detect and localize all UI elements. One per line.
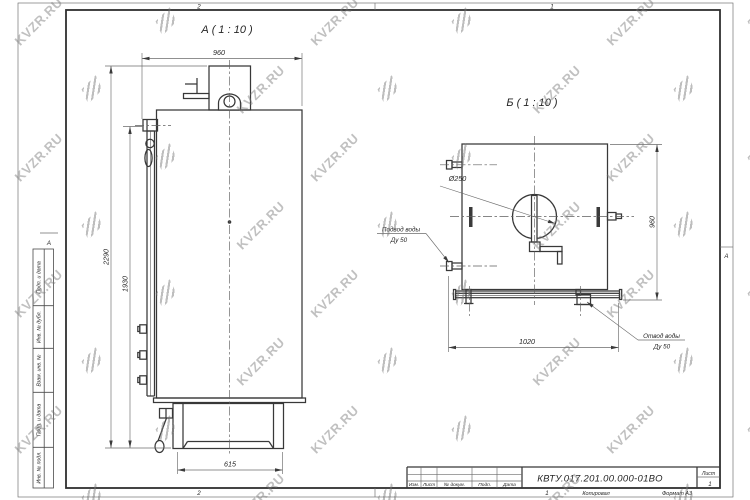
copied-by-label: Копировал (582, 491, 609, 497)
tb-col-data: Дата (502, 482, 516, 488)
tb-col-list: Лист (422, 482, 435, 488)
zone-number-top-left: 2 (196, 4, 201, 11)
title-block: Изм. Лист № докум. Подп. Дата КВТУ.017.2… (407, 467, 720, 497)
slot-right (597, 207, 601, 227)
side-view: Б ( 1 : 10 ) (377, 97, 685, 352)
dim-value: 1930 (121, 276, 130, 292)
inlet-label-line2: Ду 50 (390, 237, 408, 244)
tb-col-podp: Подп. (478, 482, 491, 488)
margin-cell-label: Инв. № дубл. (37, 311, 43, 343)
diameter-label: Ø250 (448, 174, 467, 183)
drawing-canvas: 2 1 2 1 А А Подп. и дата Инв. № дубл. Вз… (0, 0, 750, 500)
sheet-label: Лист (701, 471, 716, 477)
sheet-number: 1 (708, 481, 711, 488)
margin-cell-label: Инв. № подл. (37, 451, 43, 483)
margin-stamp-cells: Подп. и дата Инв. № дубл. Взам. инв. № П… (33, 249, 54, 488)
front-view: А ( 1 : 10 ) (102, 24, 306, 474)
sheet-frame: 2 1 2 1 А А (18, 3, 733, 497)
drawing-sheet: 2 1 2 1 А А Подп. и дата Инв. № дубл. Вз… (0, 0, 750, 500)
dim-1020: 1020 (449, 276, 619, 352)
document-number: КВТУ.017.201.00.000-01ВО (537, 474, 663, 485)
dim-1930: 1930 (121, 127, 144, 449)
dim-value: 2290 (102, 249, 111, 266)
outer-border (18, 3, 733, 497)
zone-letter-right: А (723, 253, 728, 260)
zone-number-bottom-right: 1 (545, 490, 548, 497)
dim-615: 615 (178, 452, 283, 474)
margin-cell-label: Подп. и дата (37, 261, 43, 294)
latch-lever (145, 150, 152, 167)
inlet-label-line1: Подвод воды (382, 226, 421, 234)
dim-value: 1020 (519, 337, 535, 346)
front-view-title: А ( 1 : 10 ) (200, 24, 253, 36)
side-view-title: Б ( 1 : 10 ) (506, 97, 558, 109)
tb-col-izm: Изм. (409, 482, 419, 488)
zone-number-top-right: 1 (550, 4, 553, 11)
dim-value: 960 (648, 216, 657, 228)
hinge-bolts (138, 325, 147, 384)
tb-col-docnum: № докум. (444, 482, 465, 488)
valve-body (184, 94, 210, 99)
outlet-label-line1: Отвод воды (643, 332, 680, 340)
dim-value: 615 (224, 460, 237, 469)
side-base (454, 290, 622, 305)
dim-960-side: 960 (610, 145, 662, 301)
margin-cell-label: Взам. инв. № (37, 354, 43, 386)
outlet-callout: Отвод воды Ду 50 (587, 302, 685, 351)
format-label: Формат А3 (662, 491, 693, 497)
zone-number-bottom-left: 2 (196, 490, 201, 497)
dim-value: 960 (213, 48, 225, 57)
base-handle (155, 409, 173, 453)
slot-left (469, 207, 473, 227)
outlet-label-line2: Ду 50 (653, 344, 671, 351)
inner-border (66, 10, 720, 488)
inlet-callout: Подвод воды Ду 50 (377, 226, 449, 263)
diameter-callout: Ø250 (440, 174, 555, 224)
margin-cell-label: Подп. и дата (37, 404, 43, 437)
zone-letter-left: А (46, 240, 51, 247)
